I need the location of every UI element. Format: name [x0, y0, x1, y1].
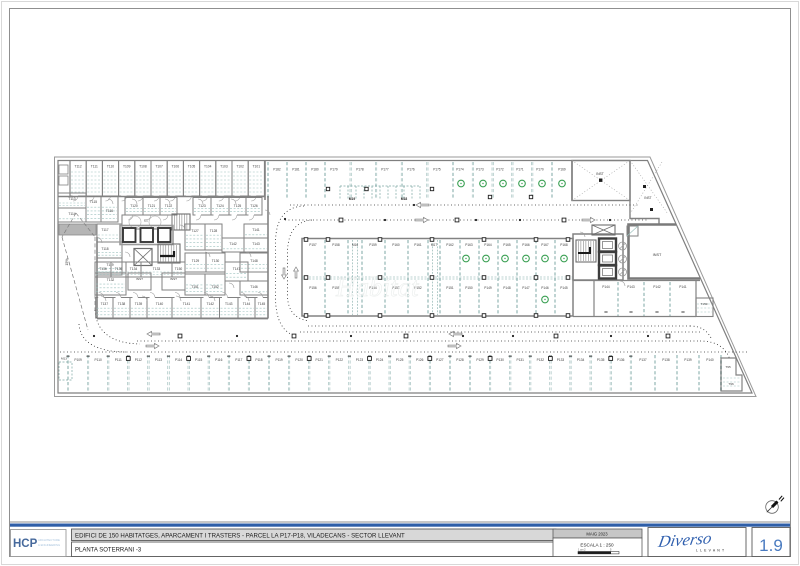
svg-text:P159: P159 [369, 243, 377, 247]
svg-text:P174: P174 [456, 168, 464, 172]
svg-text:INST: INST [644, 196, 651, 200]
svg-text:P176: P176 [407, 168, 415, 172]
svg-text:P132: P132 [537, 358, 545, 362]
svg-text:T104: T104 [204, 165, 212, 169]
svg-text:1 cm 2: 1 cm 2 [578, 549, 586, 552]
svg-text:T117: T117 [101, 228, 108, 232]
svg-text:INST: INST [170, 277, 177, 281]
svg-text:T105: T105 [188, 165, 196, 169]
svg-text:T128: T128 [210, 229, 218, 233]
svg-text:P127: P127 [436, 358, 444, 362]
svg-text:P147: P147 [522, 286, 530, 290]
svg-text:& ENGINEERING: & ENGINEERING [38, 543, 60, 547]
svg-text:T137: T137 [101, 302, 109, 306]
svg-text:P163: P163 [465, 243, 473, 247]
svg-text:T150: T150 [175, 267, 183, 271]
svg-text:P170: P170 [536, 168, 544, 172]
svg-text:P166: P166 [522, 243, 530, 247]
svg-text:T144: T144 [243, 302, 251, 306]
svg-text:P112: P112 [135, 358, 142, 362]
svg-text:T125: T125 [234, 204, 242, 208]
svg-text:P118: P118 [255, 358, 262, 362]
svg-text:P120: P120 [295, 358, 303, 362]
svg-text:P121: P121 [316, 358, 324, 362]
svg-text:T136: T136 [99, 267, 107, 271]
svg-text:P162: P162 [446, 243, 454, 247]
svg-text:P126: P126 [416, 358, 424, 362]
svg-text:T107: T107 [155, 165, 163, 169]
svg-text:T102: T102 [236, 165, 244, 169]
svg-text:T140: T140 [156, 302, 164, 306]
svg-text:T96: T96 [728, 382, 734, 386]
svg-text:M19: M19 [349, 197, 356, 201]
svg-text:T111: T111 [91, 165, 98, 169]
svg-text:P177: P177 [381, 168, 389, 172]
svg-text:P149: P149 [484, 286, 492, 290]
svg-text:P178: P178 [356, 168, 364, 172]
svg-text:M18: M18 [401, 197, 408, 201]
svg-text:T122: T122 [165, 204, 173, 208]
svg-text:P158: P158 [332, 243, 340, 247]
svg-text:P114: P114 [175, 358, 182, 362]
svg-text:T129: T129 [192, 259, 200, 263]
svg-text:T148: T148 [250, 259, 258, 263]
svg-text:INST: INST [653, 253, 662, 257]
svg-text:T141: T141 [252, 228, 260, 232]
svg-text:P156: P156 [309, 286, 317, 290]
svg-text:P111: P111 [115, 358, 122, 362]
svg-text:P143: P143 [627, 285, 635, 289]
svg-text:P157: P157 [309, 243, 317, 247]
svg-text:T112: T112 [74, 165, 81, 169]
svg-text:LLEVANT: LLEVANT [696, 549, 726, 553]
svg-text:T159: T159 [700, 302, 707, 306]
svg-text:P141: P141 [679, 285, 687, 289]
svg-text:P164: P164 [484, 243, 492, 247]
svg-text:T118: T118 [101, 247, 108, 251]
svg-text:P161: P161 [414, 243, 422, 247]
svg-text:T146: T146 [250, 285, 258, 289]
svg-text:T138: T138 [118, 302, 126, 306]
svg-text:P109: P109 [74, 358, 82, 362]
svg-text:P168: P168 [560, 243, 568, 247]
svg-text:T113: T113 [68, 197, 75, 201]
svg-text:T120: T120 [130, 204, 138, 208]
svg-text:M17: M17 [431, 243, 437, 247]
svg-text:P110: P110 [95, 358, 102, 362]
svg-text:P144: P144 [602, 285, 610, 289]
svg-text:T108: T108 [139, 165, 147, 169]
svg-text:P150: P150 [465, 286, 473, 290]
svg-text:P124: P124 [376, 358, 384, 362]
svg-text:1.9: 1.9 [759, 536, 783, 555]
svg-text:Habitat: Habitat [335, 272, 420, 302]
svg-text:P115: P115 [195, 358, 202, 362]
svg-text:PLANTA SOTERRANI -3: PLANTA SOTERRANI -3 [75, 548, 142, 554]
svg-text:T121: T121 [148, 204, 156, 208]
svg-text:P123: P123 [356, 358, 364, 362]
svg-text:T135: T135 [115, 267, 123, 271]
svg-text:P139: P139 [684, 358, 692, 362]
svg-text:T130: T130 [212, 259, 220, 263]
svg-text:T106: T106 [172, 165, 180, 169]
svg-text:T151: T151 [191, 285, 199, 289]
svg-text:P135: P135 [597, 358, 605, 362]
svg-text:P138: P138 [662, 358, 670, 362]
svg-text:P122: P122 [336, 358, 344, 362]
svg-text:T133: T133 [153, 267, 161, 271]
svg-text:P137: P137 [639, 358, 647, 362]
svg-text:P113: P113 [155, 358, 162, 362]
svg-text:P172: P172 [496, 168, 504, 172]
svg-text:P169: P169 [558, 168, 566, 172]
svg-text:T95: T95 [725, 365, 731, 369]
svg-text:ARCHITECTURE: ARCHITECTURE [38, 538, 60, 542]
svg-text:T143: T143 [252, 242, 260, 246]
svg-text:P180: P180 [311, 168, 319, 172]
svg-text:T142: T142 [229, 242, 237, 246]
svg-text:P160: P160 [392, 243, 400, 247]
svg-text:P125: P125 [396, 358, 404, 362]
svg-text:M16: M16 [352, 243, 358, 247]
svg-text:P165: P165 [503, 243, 511, 247]
svg-text:T115: T115 [90, 200, 97, 204]
svg-text:INST: INST [596, 172, 604, 176]
svg-text:P142: P142 [653, 285, 661, 289]
svg-text:EDIFICI DE 150 HABITATGES, APA: EDIFICI DE 150 HABITATGES, APARCAMENT I … [75, 533, 405, 540]
svg-text:P136: P136 [617, 358, 625, 362]
svg-text:INST: INST [136, 277, 143, 281]
svg-text:P182: P182 [273, 168, 281, 172]
svg-text:T126: T126 [250, 204, 258, 208]
svg-text:T124: T124 [216, 204, 224, 208]
svg-text:T139: T139 [135, 302, 143, 306]
svg-text:T141: T141 [183, 302, 191, 306]
svg-text:T142: T142 [206, 302, 214, 306]
svg-text:T127: T127 [191, 229, 199, 233]
svg-text:P146: P146 [541, 286, 549, 290]
svg-text:P117: P117 [235, 358, 242, 362]
svg-text:P133: P133 [557, 358, 565, 362]
svg-text:P128: P128 [456, 358, 464, 362]
svg-text:P145: P145 [560, 286, 568, 290]
svg-text:T109: T109 [123, 165, 131, 169]
svg-text:T147: T147 [233, 267, 241, 271]
svg-text:T101: T101 [253, 165, 261, 169]
svg-text:P181: P181 [292, 168, 300, 172]
svg-text:ESCALA 1 : 250: ESCALA 1 : 250 [580, 543, 614, 548]
svg-text:P116: P116 [215, 358, 222, 362]
svg-text:T116: T116 [106, 209, 113, 213]
svg-text:T152: T152 [211, 285, 219, 289]
svg-text:T110: T110 [107, 165, 114, 169]
svg-text:MAIG 2023: MAIG 2023 [586, 532, 608, 537]
svg-text:T123: T123 [198, 204, 206, 208]
svg-text:15%: 15% [65, 258, 69, 266]
svg-text:P119: P119 [275, 358, 282, 362]
svg-text:P148: P148 [503, 286, 511, 290]
svg-text:P167: P167 [541, 243, 549, 247]
svg-text:P140: P140 [706, 358, 714, 362]
svg-text:HCP: HCP [13, 538, 38, 550]
svg-text:E1: E1 [144, 219, 148, 223]
svg-text:T134: T134 [130, 267, 138, 271]
svg-text:T103: T103 [220, 165, 228, 169]
svg-text:P173: P173 [476, 168, 484, 172]
svg-text:M13: M13 [61, 357, 67, 361]
svg-text:T132: T132 [107, 278, 115, 282]
svg-text:P175: P175 [433, 168, 441, 172]
svg-text:P129: P129 [476, 358, 484, 362]
svg-text:T145: T145 [258, 302, 266, 306]
svg-text:P131: P131 [517, 358, 525, 362]
svg-text:P130: P130 [496, 358, 504, 362]
svg-text:P151: P151 [446, 286, 454, 290]
svg-text:T119: T119 [106, 263, 113, 267]
svg-text:P134: P134 [577, 358, 585, 362]
svg-text:P179: P179 [330, 168, 338, 172]
svg-text:P171: P171 [516, 168, 524, 172]
svg-text:T143: T143 [225, 302, 233, 306]
